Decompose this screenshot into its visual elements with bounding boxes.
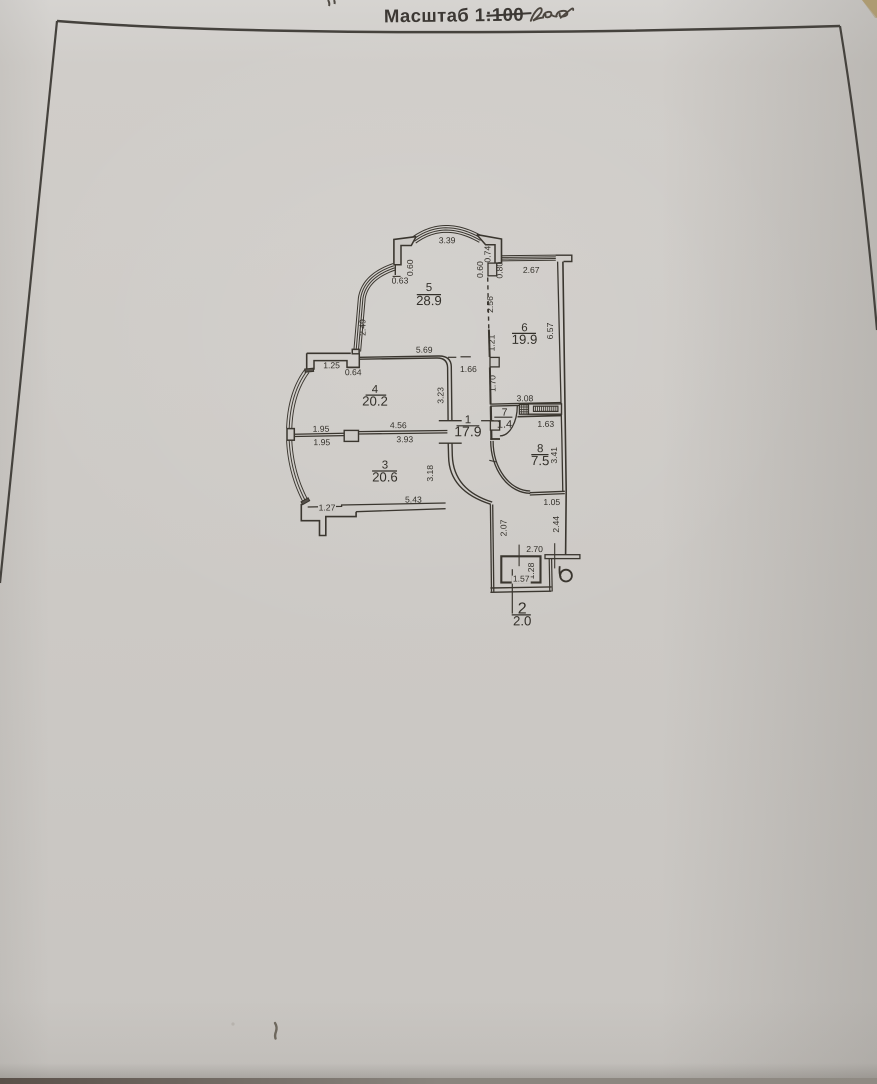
svg-text:6.57: 6.57 xyxy=(545,322,555,339)
svg-text:0.64: 0.64 xyxy=(345,367,362,377)
svg-text:0.80: 0.80 xyxy=(494,262,504,279)
svg-text:1.95: 1.95 xyxy=(313,424,330,434)
svg-text:2.67: 2.67 xyxy=(523,265,540,275)
svg-text:2.44: 2.44 xyxy=(551,516,561,533)
svg-text:19.9: 19.9 xyxy=(512,332,538,347)
svg-text:4.56: 4.56 xyxy=(390,420,407,430)
svg-text:3.08: 3.08 xyxy=(517,393,534,403)
svg-text:2.07: 2.07 xyxy=(498,519,508,536)
svg-text:2.0: 2.0 xyxy=(513,613,531,628)
svg-text:2.49: 2.49 xyxy=(357,319,367,336)
svg-text:1.95: 1.95 xyxy=(313,437,330,447)
svg-text:20.6: 20.6 xyxy=(372,469,398,484)
svg-text:5.69: 5.69 xyxy=(416,345,433,355)
svg-text:5.43: 5.43 xyxy=(405,494,422,504)
svg-text:0.60: 0.60 xyxy=(405,259,415,276)
svg-text:1.66: 1.66 xyxy=(460,364,477,374)
svg-text:0.60: 0.60 xyxy=(475,261,485,278)
svg-text:1.27: 1.27 xyxy=(319,502,336,512)
svg-text:17.9: 17.9 xyxy=(454,423,482,439)
svg-text:1.4: 1.4 xyxy=(497,419,512,431)
svg-text:20.2: 20.2 xyxy=(362,394,388,409)
svg-text:2.70: 2.70 xyxy=(526,544,543,554)
svg-text:2.56: 2.56 xyxy=(485,296,495,313)
svg-text:1.63: 1.63 xyxy=(537,419,554,429)
svg-text:28.9: 28.9 xyxy=(416,293,442,308)
svg-text:3.41: 3.41 xyxy=(549,447,559,464)
svg-text:3.39: 3.39 xyxy=(439,235,456,245)
svg-text:3.23: 3.23 xyxy=(435,387,445,404)
svg-text:3.93: 3.93 xyxy=(396,434,413,444)
svg-text:1.05: 1.05 xyxy=(543,497,560,507)
svg-text:1.25: 1.25 xyxy=(323,360,340,370)
svg-text:1.70: 1.70 xyxy=(487,375,497,392)
svg-text:7.5: 7.5 xyxy=(531,453,549,468)
svg-text:1.57: 1.57 xyxy=(513,574,530,584)
svg-text:3.18: 3.18 xyxy=(425,465,435,482)
svg-text:0.74: 0.74 xyxy=(482,246,492,263)
svg-text:1.21: 1.21 xyxy=(487,334,497,351)
